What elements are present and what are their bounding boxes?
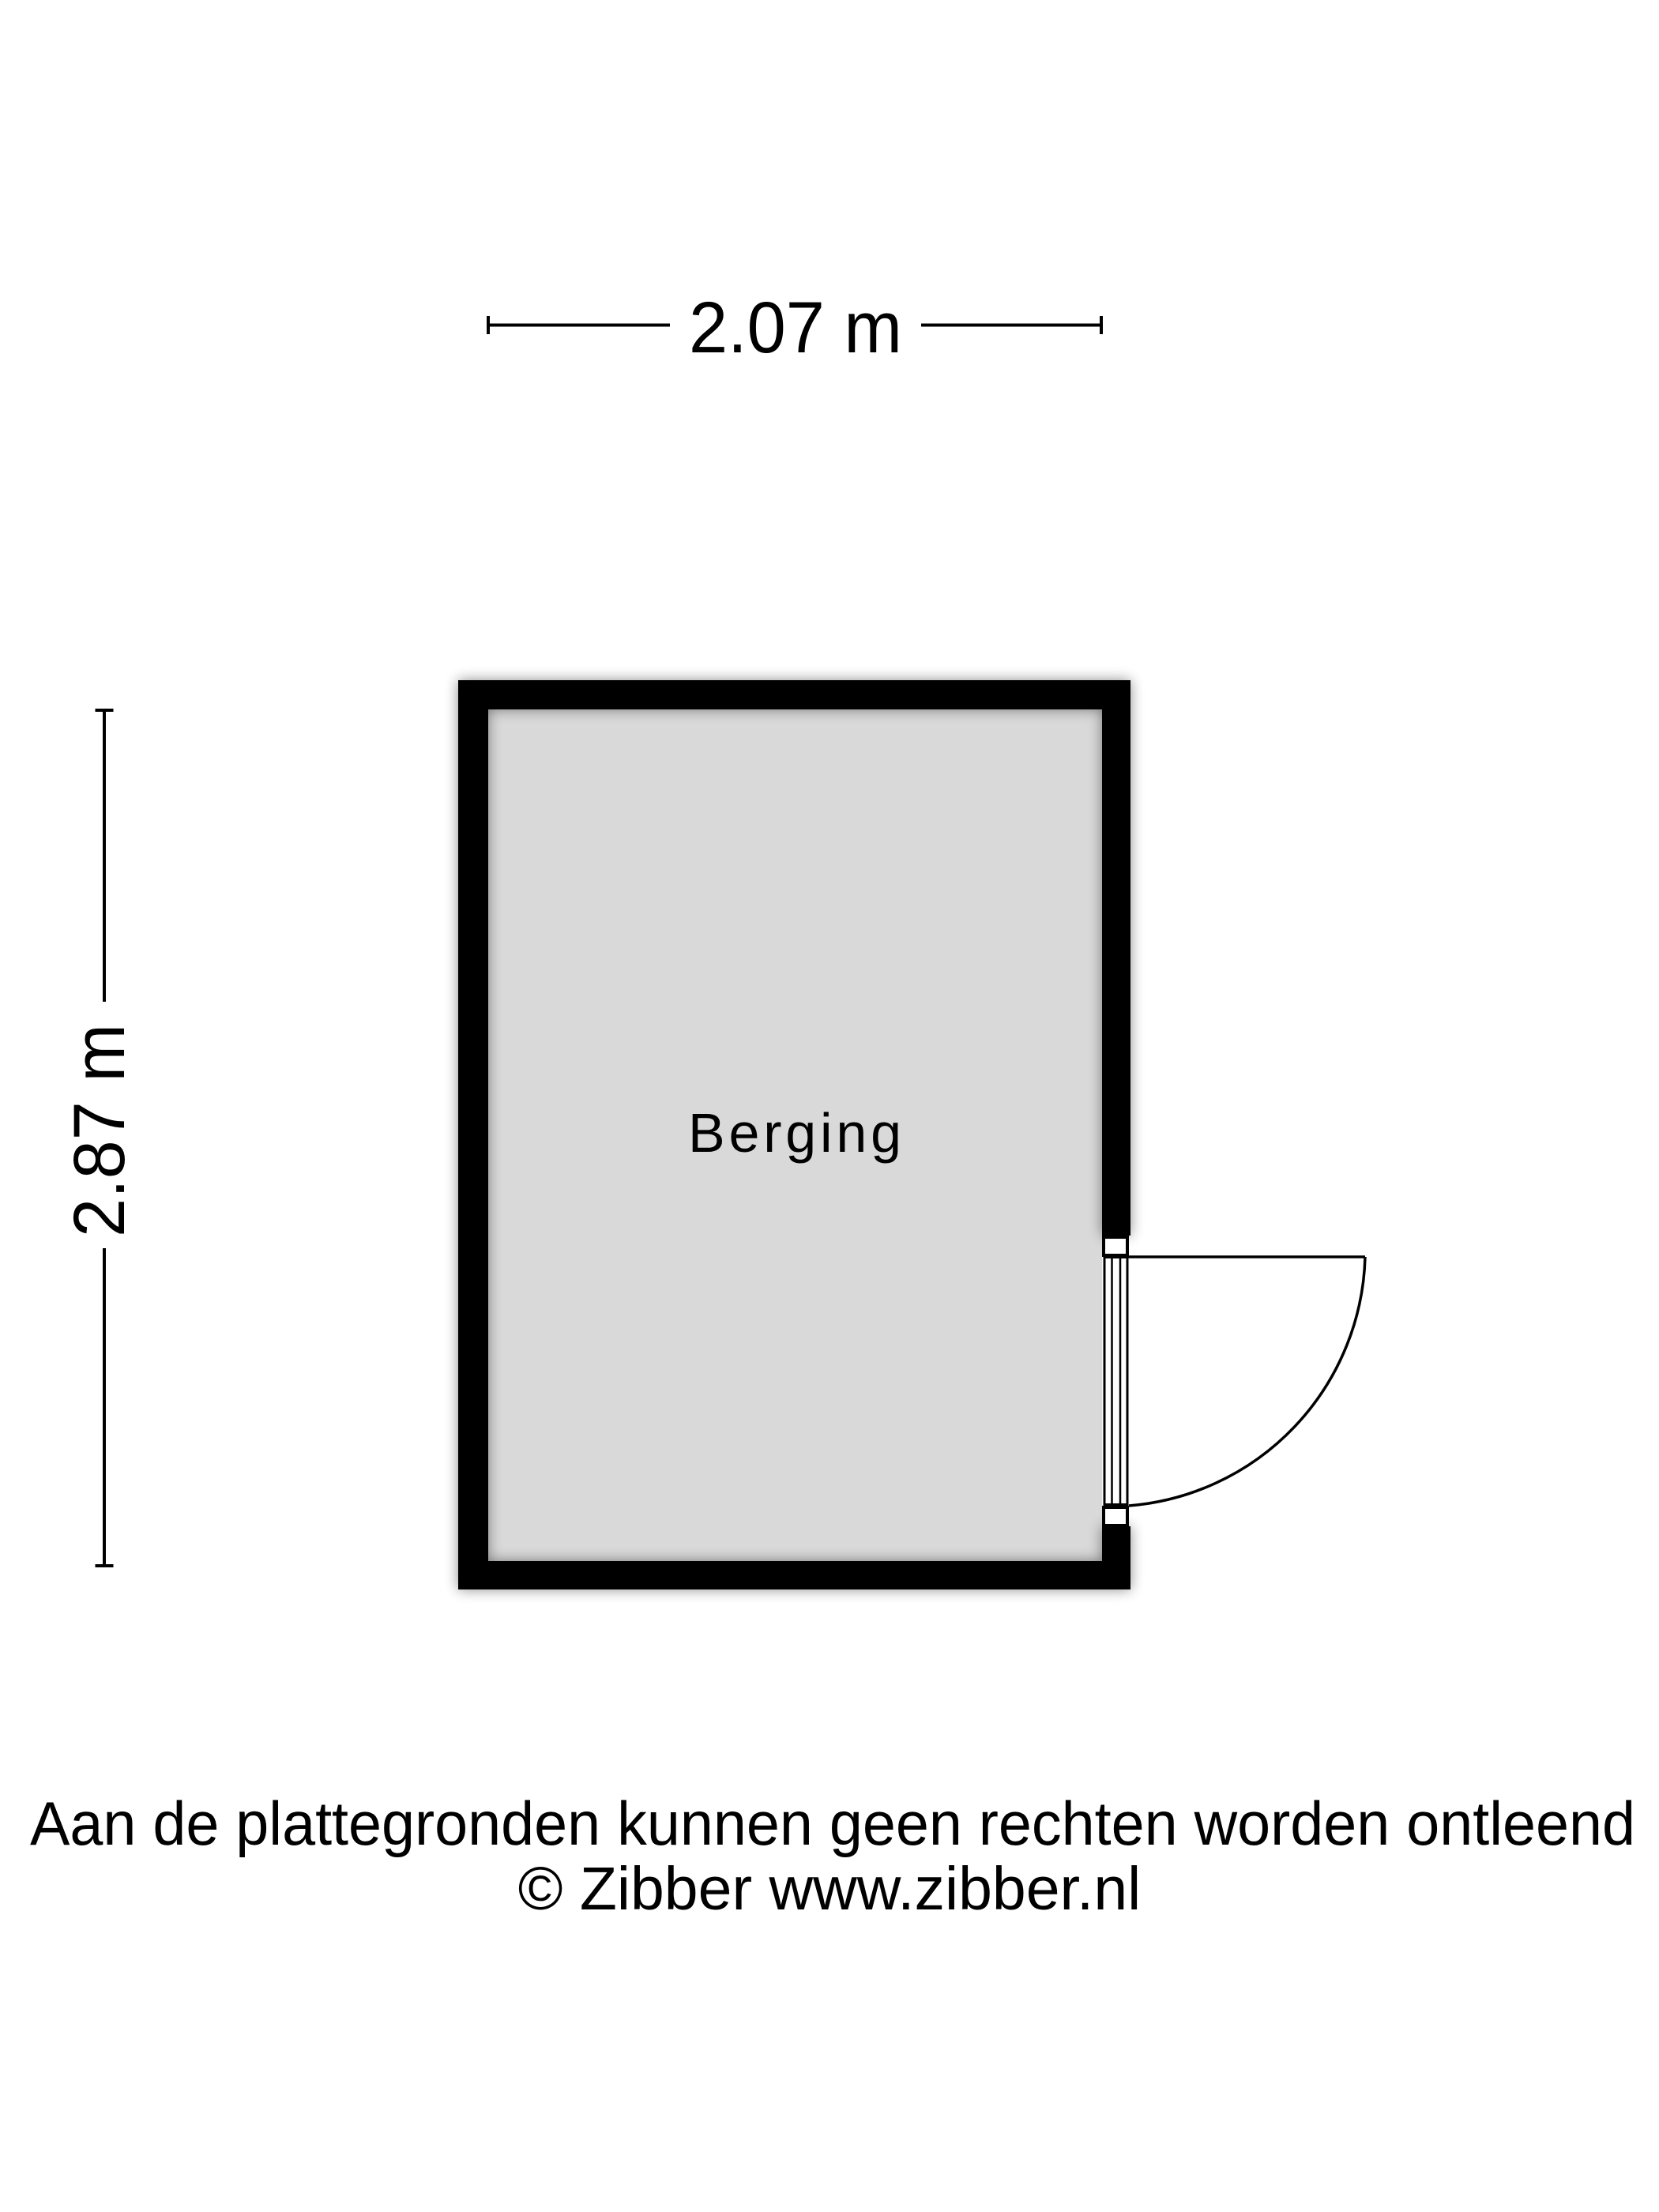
svg-text:2.07 m: 2.07 m bbox=[689, 288, 902, 368]
svg-text:Aan de plattegronden kunnen ge: Aan de plattegronden kunnen geen rechten… bbox=[30, 1789, 1635, 1858]
svg-text:2.87 m: 2.87 m bbox=[59, 1024, 140, 1237]
svg-text:© Zibber www.zibber.nl: © Zibber www.zibber.nl bbox=[518, 1855, 1142, 1923]
